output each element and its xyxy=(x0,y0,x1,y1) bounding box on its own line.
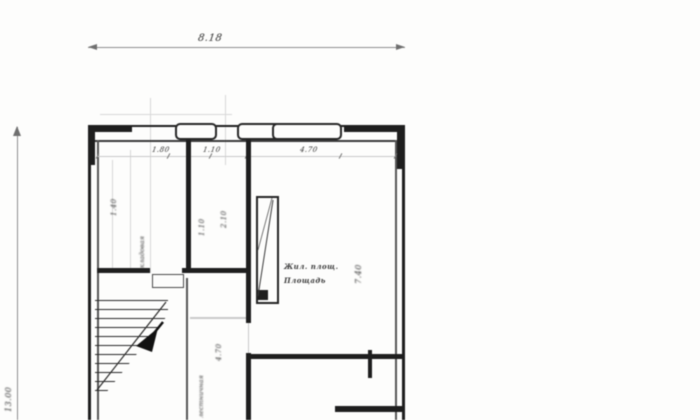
dimension-label-middle-1: 1.10 xyxy=(198,202,206,236)
dimension-label-right-room: 7.40 xyxy=(354,238,363,284)
flue-hatch-line xyxy=(258,198,272,250)
dimension-label-left-room: 1.40 xyxy=(110,182,118,216)
dimension-label-middle-2: 2.10 xyxy=(220,196,228,228)
arrowhead-icon xyxy=(13,126,21,136)
room-label-left: кладовая xyxy=(138,190,146,268)
room-label-right-line1: Жил. площ. xyxy=(284,262,339,271)
flue-hatch-line xyxy=(258,200,273,296)
arrowhead-icon xyxy=(88,44,97,50)
stair-cut-line xyxy=(97,302,166,390)
room-label-right-line2: Площадь xyxy=(284,276,326,285)
plan-line-overlay xyxy=(0,0,700,420)
floor-plan-page: 8.18 13.00 1.80 1.10 4.70 xyxy=(0,0,700,420)
arrowhead-icon xyxy=(396,44,405,50)
room-label-corridor: лестничная xyxy=(197,330,205,418)
dimension-label-corridor: 4.70 xyxy=(215,331,223,361)
floor-plan-drawing: 8.18 13.00 1.80 1.10 4.70 xyxy=(0,0,700,420)
stair-arrow-tail xyxy=(150,322,163,338)
